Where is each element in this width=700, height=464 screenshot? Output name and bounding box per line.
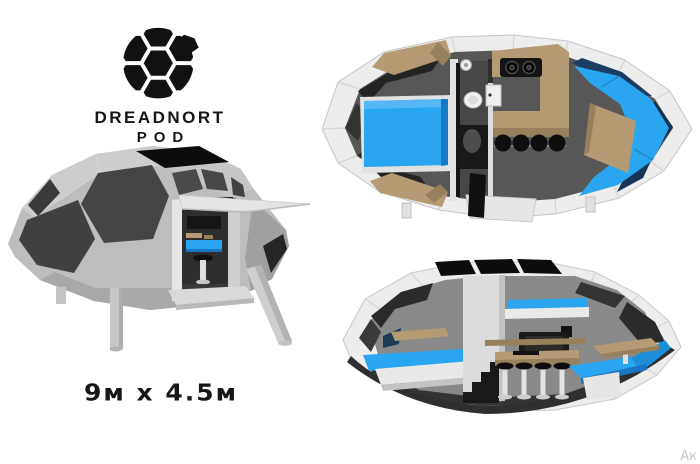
floor-plan-view [322,25,697,230]
exterior-render-view [0,138,320,363]
door-leaf [468,173,486,218]
brand-block: DREADNORT POD [58,24,262,146]
leg-stub [402,203,411,218]
leg-stub [586,197,595,212]
sink [486,85,501,106]
watermark: Ак [680,449,697,464]
interior-table [186,240,222,249]
loft-slab [505,307,589,319]
bed [360,95,454,173]
dimensions-label: 9м x 4.5м [55,379,267,406]
product-sheet-page: { "brand": { "icon": "hex-ball-icon", "n… [0,0,700,464]
hex-ball-icon [117,24,203,104]
cutaway-view [335,252,695,427]
brand-name: DREADNORT [58,109,262,128]
solar-panels [435,259,562,276]
